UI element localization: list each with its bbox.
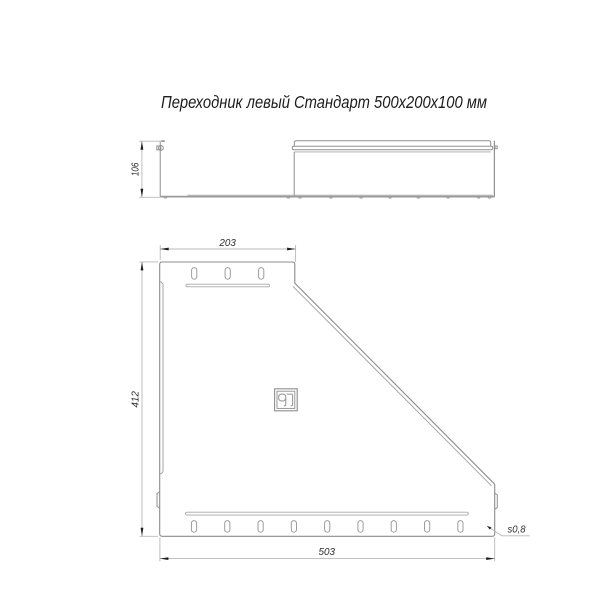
svg-text:412: 412 [129, 391, 141, 408]
svg-text:Переходник левый Стандарт 500х: Переходник левый Стандарт 500х200х100 мм [161, 92, 487, 112]
svg-text:s0,8: s0,8 [508, 524, 526, 536]
svg-text:203: 203 [218, 237, 236, 249]
svg-text:106: 106 [129, 163, 141, 177]
svg-text:503: 503 [319, 546, 336, 558]
